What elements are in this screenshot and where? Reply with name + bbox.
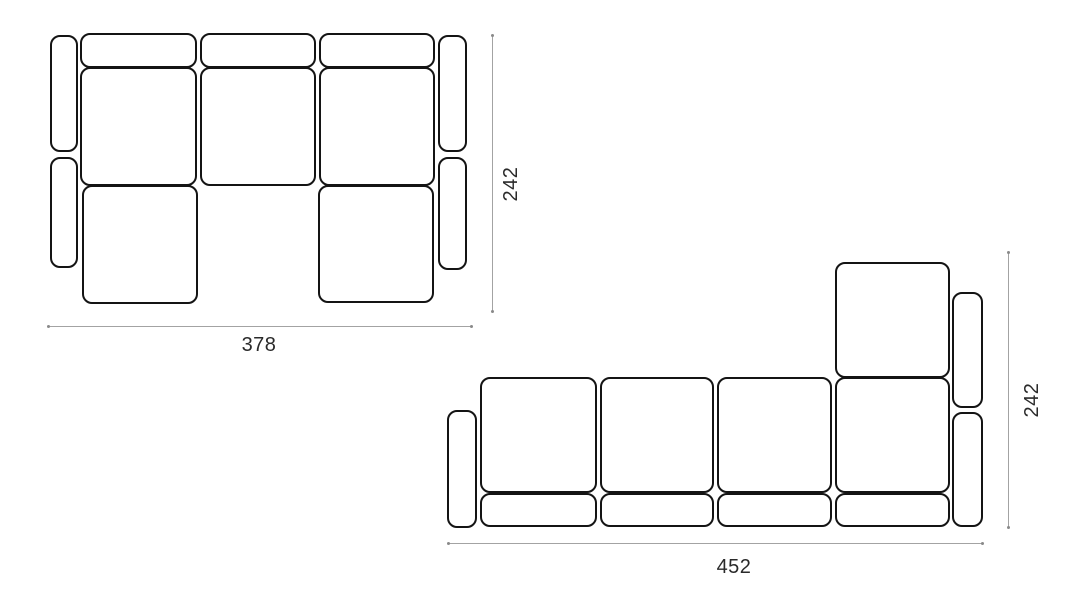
width-dimension-line <box>448 543 983 544</box>
height-dimension-line <box>1008 252 1009 528</box>
front-cushion-2 <box>600 493 714 527</box>
front-cushion-3 <box>717 493 832 527</box>
dimension-end-dot <box>1007 526 1010 529</box>
seat-cushion-2 <box>600 377 714 493</box>
seat-cushion-1 <box>480 377 597 493</box>
furniture-dimension-diagram: 378242452242 <box>0 0 1067 600</box>
chaise-seat <box>835 262 950 378</box>
sofa-top-view-right-chaise: 452242 <box>0 0 1067 600</box>
front-cushion-4 <box>835 493 950 527</box>
dimension-end-dot <box>447 542 450 545</box>
armrest-left <box>447 410 477 528</box>
front-cushion-1 <box>480 493 597 527</box>
width-dimension-label: 452 <box>717 556 752 578</box>
seat-cushion-3 <box>717 377 832 493</box>
height-dimension-label: 242 <box>1021 383 1043 418</box>
dimension-end-dot <box>1007 251 1010 254</box>
armrest-right-lower <box>952 412 983 527</box>
seat-cushion-4 <box>835 377 950 493</box>
armrest-right-upper <box>952 292 983 408</box>
dimension-end-dot <box>981 542 984 545</box>
